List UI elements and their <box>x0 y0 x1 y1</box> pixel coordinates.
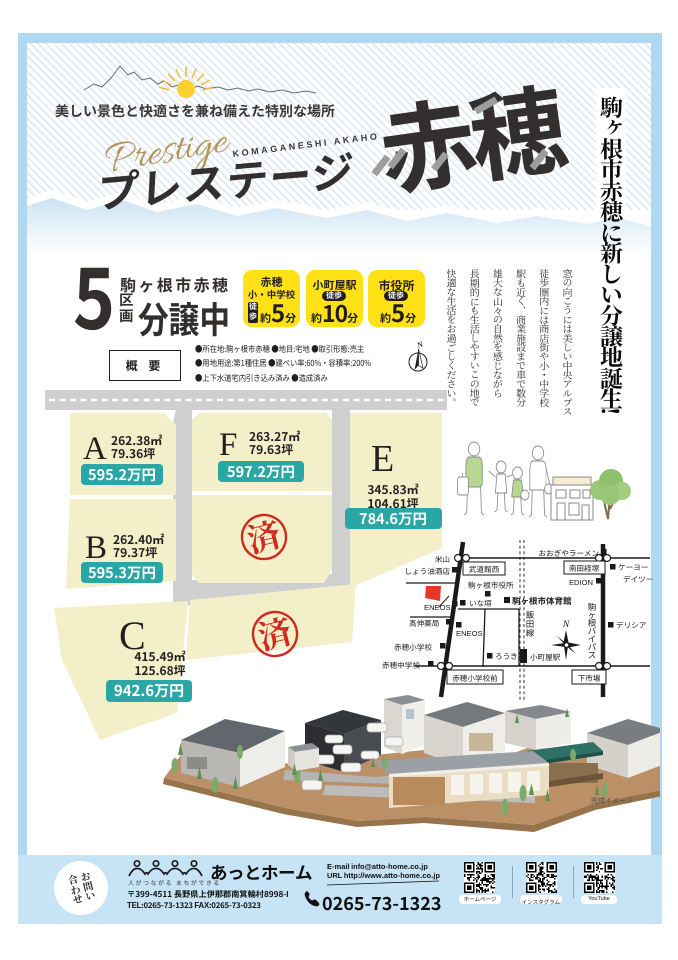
svg-text:デイツー: デイツー <box>623 574 653 585</box>
svg-text:79.37坪: 79.37坪 <box>113 544 157 561</box>
svg-text:597.2万円: 597.2万円 <box>227 461 295 482</box>
svg-text:E: E <box>371 438 394 480</box>
svg-text:下市場: 下市場 <box>578 673 601 684</box>
svg-text:武道館西: 武道館西 <box>469 564 500 575</box>
svg-text:595.2万円: 595.2万円 <box>88 464 156 485</box>
svg-text:ス: ス <box>588 649 597 661</box>
svg-text:A: A <box>83 431 107 467</box>
svg-text:N: N <box>562 620 570 630</box>
svg-text:デリシア: デリシア <box>616 620 647 631</box>
svg-text:完成イメージ: 完成イメージ <box>591 796 633 806</box>
svg-text:おおぎやラーメン: おおぎやラーメン <box>539 548 600 559</box>
svg-text:79.63坪: 79.63坪 <box>249 441 293 458</box>
svg-text:赤穂小学校前: 赤穂小学校前 <box>452 673 498 684</box>
svg-text:駒ヶ根市体育館: 駒ヶ根市体育館 <box>512 595 572 607</box>
svg-text:しょう油酒店: しょう油酒店 <box>404 566 450 577</box>
svg-text:高伸薬局: 高伸薬局 <box>409 618 439 629</box>
svg-text:南田経塚: 南田経塚 <box>569 563 600 574</box>
svg-text:ENEOS: ENEOS <box>424 603 451 612</box>
svg-text:595.3万円: 595.3万円 <box>88 562 156 583</box>
svg-text:125.68坪: 125.68坪 <box>134 662 185 679</box>
svg-text:ENEOS: ENEOS <box>456 629 483 638</box>
svg-text:線: 線 <box>526 627 535 639</box>
svg-text:N: N <box>414 339 425 351</box>
svg-text:F: F <box>219 427 237 463</box>
svg-text:784.6万円: 784.6万円 <box>359 508 427 529</box>
svg-text:ろうきん: ろうきん <box>495 651 526 662</box>
svg-text:米山: 米山 <box>435 554 450 565</box>
svg-text:赤穂中学校: 赤穂中学校 <box>382 660 420 671</box>
svg-text:EDION: EDION <box>569 577 593 588</box>
svg-text:79.36坪: 79.36坪 <box>111 445 155 462</box>
svg-text:小町屋駅: 小町屋駅 <box>530 652 561 663</box>
svg-text:いな垣: いな垣 <box>469 598 492 609</box>
svg-text:赤穂小学校: 赤穂小学校 <box>394 642 432 653</box>
svg-text:B: B <box>85 530 107 566</box>
svg-text:駒ヶ根市役所: 駒ヶ根市役所 <box>468 580 514 591</box>
svg-text:ケーヨー: ケーヨー <box>618 562 648 573</box>
